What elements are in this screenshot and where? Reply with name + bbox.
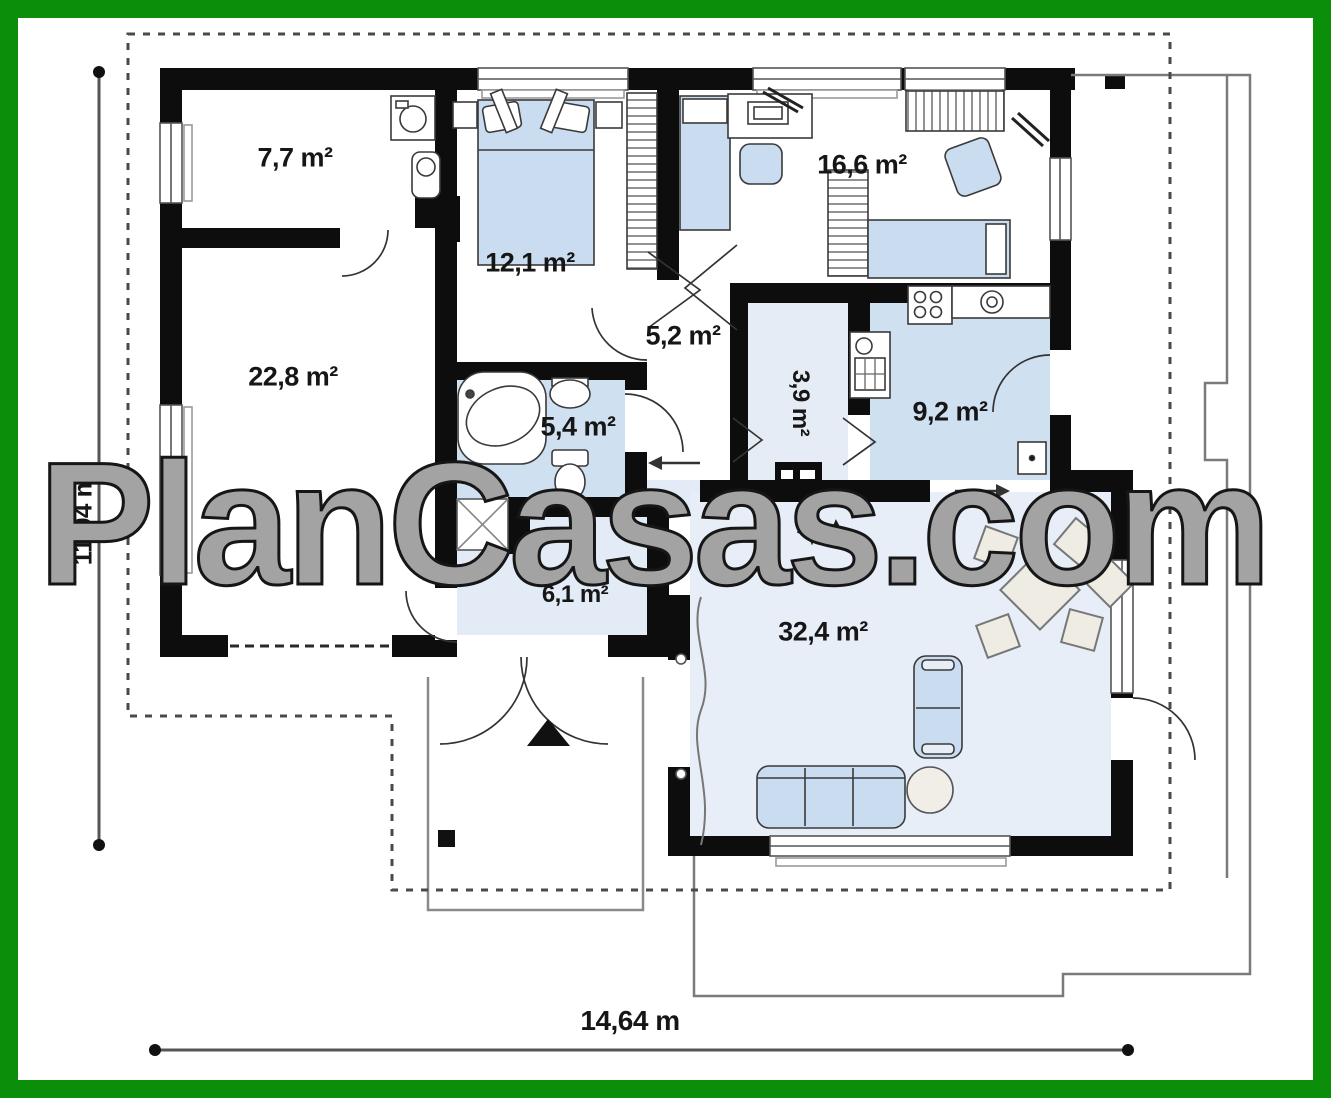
single-bed-left [680,96,730,230]
stove [908,286,952,324]
kitchen-unit [850,332,890,398]
wardrobe [828,170,868,276]
floor-plan-canvas: 7,7 m² 12,1 m² 16,6 m² 22,8 m² 5,2 m² 3,… [0,0,1331,1098]
washing-machine [391,96,435,140]
sink [550,378,590,408]
double-bed [478,100,594,265]
shelf [906,91,1004,131]
shower [457,499,508,550]
room-label-garage: 22,8 m² [248,362,338,393]
lamp-mark [1012,113,1049,146]
room-label-hall: 5,2 m² [645,321,720,352]
nightstand [453,102,477,128]
single-bed-right [868,220,1010,278]
room-label-bedroom1: 12,1 m² [485,248,575,279]
room-label-entry: 6,1 m² [542,581,608,609]
armchair [943,136,1003,199]
bathtub [457,372,549,464]
desk-chair [740,144,782,184]
room-label-kitchen: 9,2 m² [912,397,987,428]
dimension-height-label: 11,94 m [68,475,99,565]
toilet [552,450,588,500]
water-heater [412,152,440,198]
cabinet [1018,442,1046,474]
sofa [757,766,905,828]
room-label-utility: 7,7 m² [257,143,332,174]
room-label-bedroom2: 16,6 m² [817,150,907,181]
room-label-living: 32,4 m² [778,617,868,648]
side-table [907,767,953,813]
wardrobe [627,93,657,269]
porch-outline [428,677,643,910]
dimension-width-label: 14,64 m [580,1005,679,1037]
floor-plan-drawing [0,0,1331,1098]
nightstand [596,102,622,128]
desk [728,94,812,138]
room-label-pantry: 3,9 m² [786,370,814,436]
chaise-chair [914,656,962,758]
counter-sink [952,286,1050,318]
room-label-bathroom: 5,4 m² [540,412,615,443]
